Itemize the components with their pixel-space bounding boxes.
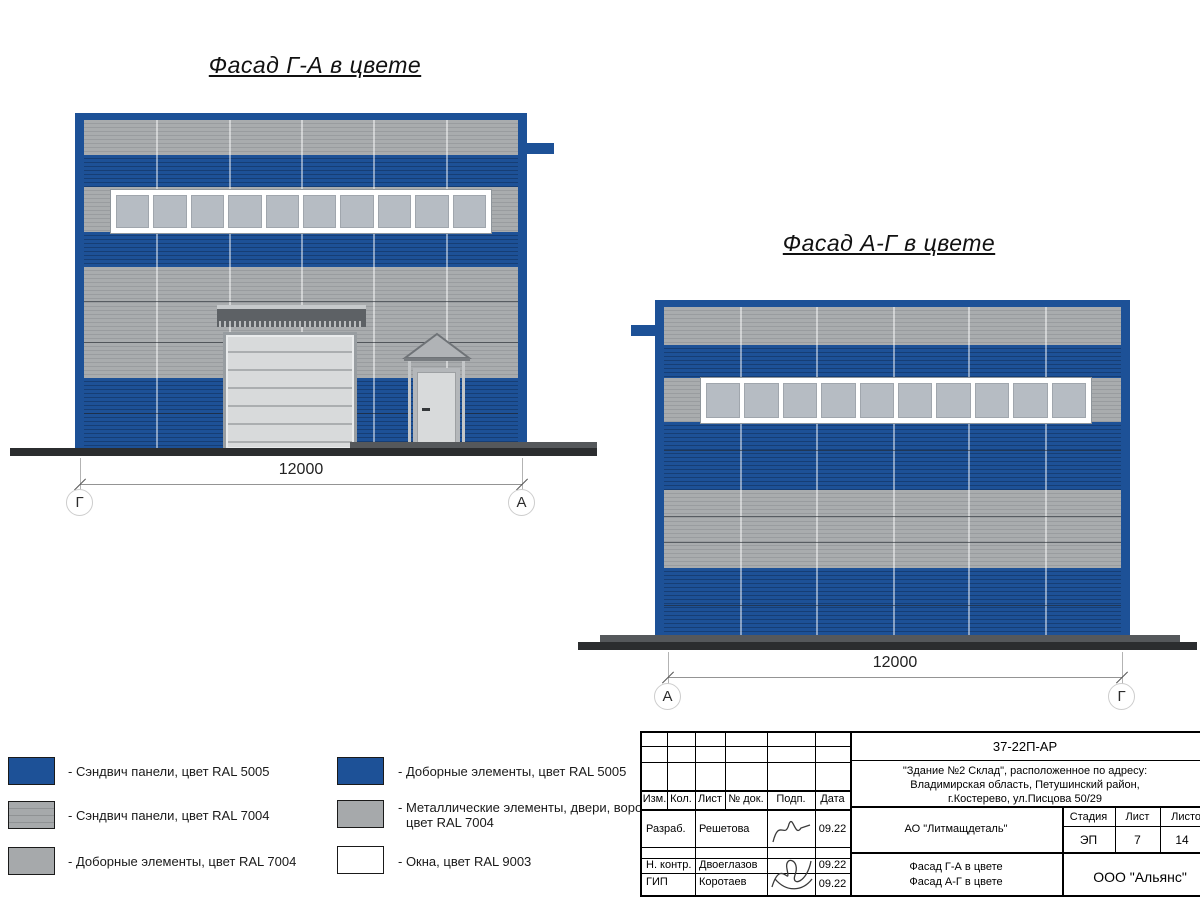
company: ООО "Альянс"	[1062, 869, 1200, 885]
canopy-base	[404, 358, 470, 361]
col-list: Лист	[695, 793, 725, 805]
stage-label: Стадия	[1062, 811, 1115, 823]
sheets-value: 14	[1160, 833, 1200, 847]
window-pane	[228, 195, 261, 228]
col-kol: Кол.	[667, 793, 695, 805]
facade-right-view	[655, 300, 1130, 648]
legend-swatch-ral9003	[337, 846, 384, 874]
sheet-label: Лист	[1115, 811, 1160, 823]
door-canopy	[402, 331, 472, 361]
organization: АО "Литмащдеталь"	[850, 823, 1062, 835]
document-code: 37-22П-АР	[850, 739, 1200, 754]
window-pane	[191, 195, 224, 228]
gutter-outlet	[631, 325, 656, 336]
axis-marker-a: А	[654, 683, 681, 710]
facade-left-title: Фасад Г-А в цвете	[180, 52, 450, 79]
window-pane	[266, 195, 299, 228]
panel-joints	[664, 307, 1121, 648]
legend-label: - Окна, цвет RAL 9003	[398, 854, 531, 869]
window-pane	[975, 383, 1009, 418]
dimension-label: 12000	[80, 461, 522, 479]
window-pane	[936, 383, 970, 418]
address-line1: "Здание №2 Склад", расположенное по адре…	[850, 764, 1200, 778]
legend-label: - Сэндвич панели, цвет RAL 5005	[68, 764, 270, 779]
window-pane	[303, 195, 336, 228]
row-name: Решетова	[699, 823, 749, 835]
legend-swatch-ral5005	[337, 757, 384, 785]
legend-label: - Металлические элементы, двери, ворота,…	[398, 800, 659, 830]
ground-line	[10, 448, 597, 456]
window-pane	[821, 383, 855, 418]
project-address: "Здание №2 Склад", расположенное по адре…	[850, 764, 1200, 806]
facade-right-title: Фасад А-Г в цвете	[754, 230, 1024, 257]
window-pane	[744, 383, 778, 418]
stage-value: ЭП	[1062, 833, 1115, 847]
row-name: Коротаев	[699, 876, 747, 888]
window-pane	[860, 383, 894, 418]
window-pane	[783, 383, 817, 418]
legend-swatch-ral5005	[8, 757, 55, 785]
row-date: 09.22	[815, 878, 850, 890]
col-podp: Подп.	[767, 793, 815, 805]
dimension-label: 12000	[668, 654, 1122, 672]
row-date: 09.22	[815, 859, 850, 871]
axis-marker-g: Г	[1108, 683, 1135, 710]
col-izm: Изм.	[642, 793, 667, 805]
dimension-line	[80, 484, 522, 485]
facade-left-view	[75, 113, 527, 452]
sectional-gate	[223, 332, 357, 452]
sheets-label: Листов	[1160, 811, 1200, 823]
window-pane	[340, 195, 373, 228]
doc-title-line1: Фасад Г-А в цвете	[850, 860, 1062, 875]
window-pane	[706, 383, 740, 418]
legend-label: - Доборные элементы, цвет RAL 5005	[398, 764, 626, 779]
sheet-value: 7	[1115, 833, 1160, 847]
legend-swatch-ral7004	[8, 847, 55, 875]
col-ndok: № док.	[725, 793, 767, 805]
legend-label: - Доборные элементы, цвет RAL 7004	[68, 854, 296, 869]
window-pane	[1013, 383, 1047, 418]
window-pane	[898, 383, 932, 418]
address-line3: г.Костерево, ул.Писцова 50/29	[850, 792, 1200, 806]
document-title: Фасад Г-А в цвете Фасад А-Г в цвете	[850, 860, 1062, 890]
row-role: Разраб.	[646, 823, 686, 835]
ground-line	[578, 642, 1197, 650]
legend-label-line2: цвет RAL 7004	[398, 815, 659, 830]
window-pane	[1052, 383, 1086, 418]
canopy-post	[462, 361, 465, 451]
address-line2: Владимирская область, Петушинский район,	[850, 778, 1200, 792]
window-pane	[453, 195, 486, 228]
door-handle	[422, 408, 430, 411]
gate-awning	[217, 305, 366, 327]
gutter-outlet	[525, 143, 554, 154]
doc-title-line2: Фасад А-Г в цвете	[850, 875, 1062, 890]
legend-swatch-ral7004-panels	[8, 801, 55, 829]
signature	[767, 849, 817, 895]
window-pane	[116, 195, 149, 228]
row-role: Н. контр.	[646, 859, 691, 871]
window-strip	[700, 377, 1092, 424]
legend-label-line1: - Металлические элементы, двери, ворота,	[398, 800, 659, 815]
drawing-sheet: Фасад Г-А в цвете Фасад А-Г в цвете	[0, 0, 1200, 900]
legend-swatch-ral7004	[337, 800, 384, 828]
window-pane	[153, 195, 186, 228]
dimension-line	[668, 677, 1122, 678]
window-pane	[415, 195, 448, 228]
canopy-post	[408, 361, 411, 451]
entry-door	[413, 368, 460, 452]
axis-marker-a: А	[508, 489, 535, 516]
row-date: 09.22	[815, 823, 850, 835]
legend-label: - Сэндвич панели, цвет RAL 7004	[68, 808, 270, 823]
title-block: Изм. Кол. Лист № док. Подп. Дата Разраб.…	[640, 731, 1200, 897]
col-data: Дата	[815, 793, 850, 805]
window-strip	[110, 189, 492, 234]
row-role: ГИП	[646, 876, 668, 888]
window-pane	[378, 195, 411, 228]
row-name: Двоеглазов	[699, 859, 757, 871]
axis-marker-g: Г	[66, 489, 93, 516]
signature	[769, 812, 814, 848]
